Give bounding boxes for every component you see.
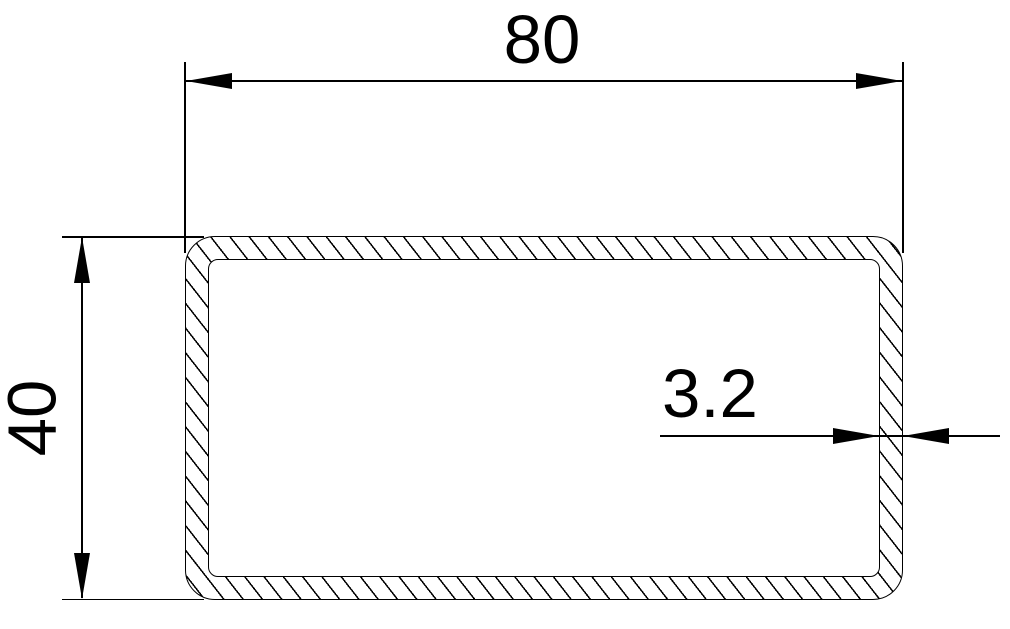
width-extension-line-right [902, 62, 903, 253]
tube-outer-profile [185, 236, 903, 600]
width-arrow-left-icon [186, 73, 232, 89]
thickness-arrow-right-icon [903, 428, 949, 444]
height-dimension-line [81, 238, 82, 598]
drawing-canvas: 80 40 3.2 [0, 0, 1010, 629]
width-dimension-line [186, 80, 902, 81]
thickness-arrow-left-icon [833, 428, 879, 444]
height-extension-line-top [62, 236, 204, 237]
thickness-dimension-label: 3.2 [662, 359, 758, 428]
width-arrow-right-icon [856, 73, 902, 89]
height-arrow-top-icon [74, 237, 90, 283]
thickness-dimension-line [660, 435, 1000, 436]
width-extension-line-left [184, 62, 185, 253]
tube-inner-profile [208, 259, 880, 577]
width-dimension-label: 80 [504, 5, 581, 74]
height-dimension-label: 40 [0, 380, 67, 457]
height-extension-line-bottom [62, 599, 204, 600]
height-arrow-bottom-icon [74, 553, 90, 599]
